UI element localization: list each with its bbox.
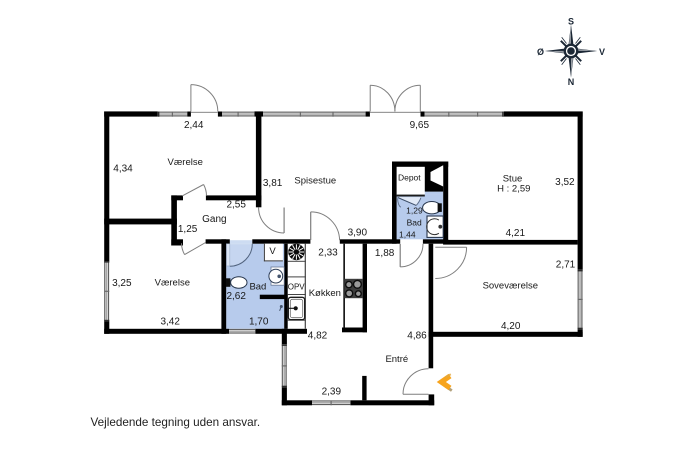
svg-text:3,42: 3,42 [160,316,180,327]
svg-text:2,39: 2,39 [322,386,342,397]
svg-text:N: N [568,77,575,87]
svg-text:2,55: 2,55 [226,200,246,211]
svg-text:Vejledende tegning uden ansvar: Vejledende tegning uden ansvar. [91,416,261,429]
svg-text:4,86: 4,86 [407,331,427,342]
svg-text:1,70: 1,70 [249,316,269,327]
svg-text:3,25: 3,25 [112,278,132,289]
svg-text:V: V [269,246,276,257]
svg-text:3,90: 3,90 [348,228,368,239]
svg-text:4,21: 4,21 [506,228,526,239]
svg-text:Køkken: Køkken [309,288,341,299]
svg-text:1,44: 1,44 [399,229,416,239]
svg-text:2,44: 2,44 [184,120,204,131]
svg-text:Bad: Bad [249,281,266,292]
svg-text:2,71: 2,71 [556,259,576,270]
svg-text:Spisestue: Spisestue [294,175,336,186]
svg-text:9,65: 9,65 [410,120,430,131]
svg-text:4,20: 4,20 [501,321,521,332]
svg-text:2,33: 2,33 [318,247,338,258]
svg-text:4,34: 4,34 [113,164,133,175]
svg-text:Værelse: Værelse [168,157,203,168]
svg-text:V: V [599,47,605,57]
svg-text:Værelse: Værelse [155,278,190,289]
svg-text:1,25: 1,25 [178,224,198,235]
svg-text:Entré: Entré [385,354,408,365]
svg-text:Ø: Ø [537,47,544,57]
svg-text:Bad: Bad [407,217,422,227]
svg-text:3,81: 3,81 [263,178,283,189]
svg-text:Depot: Depot [398,173,421,183]
svg-text:3,52: 3,52 [555,177,575,188]
svg-text:H : 2,59: H : 2,59 [497,183,530,194]
svg-text:1,88: 1,88 [375,248,395,259]
svg-text:Gang: Gang [202,214,226,225]
svg-text:2,62: 2,62 [226,291,246,302]
svg-text:1,29: 1,29 [406,206,423,216]
svg-text:S: S [568,17,574,27]
svg-text:OPV: OPV [288,283,306,292]
svg-text:Soveværelse: Soveværelse [483,281,538,292]
svg-text:4,82: 4,82 [308,331,328,342]
